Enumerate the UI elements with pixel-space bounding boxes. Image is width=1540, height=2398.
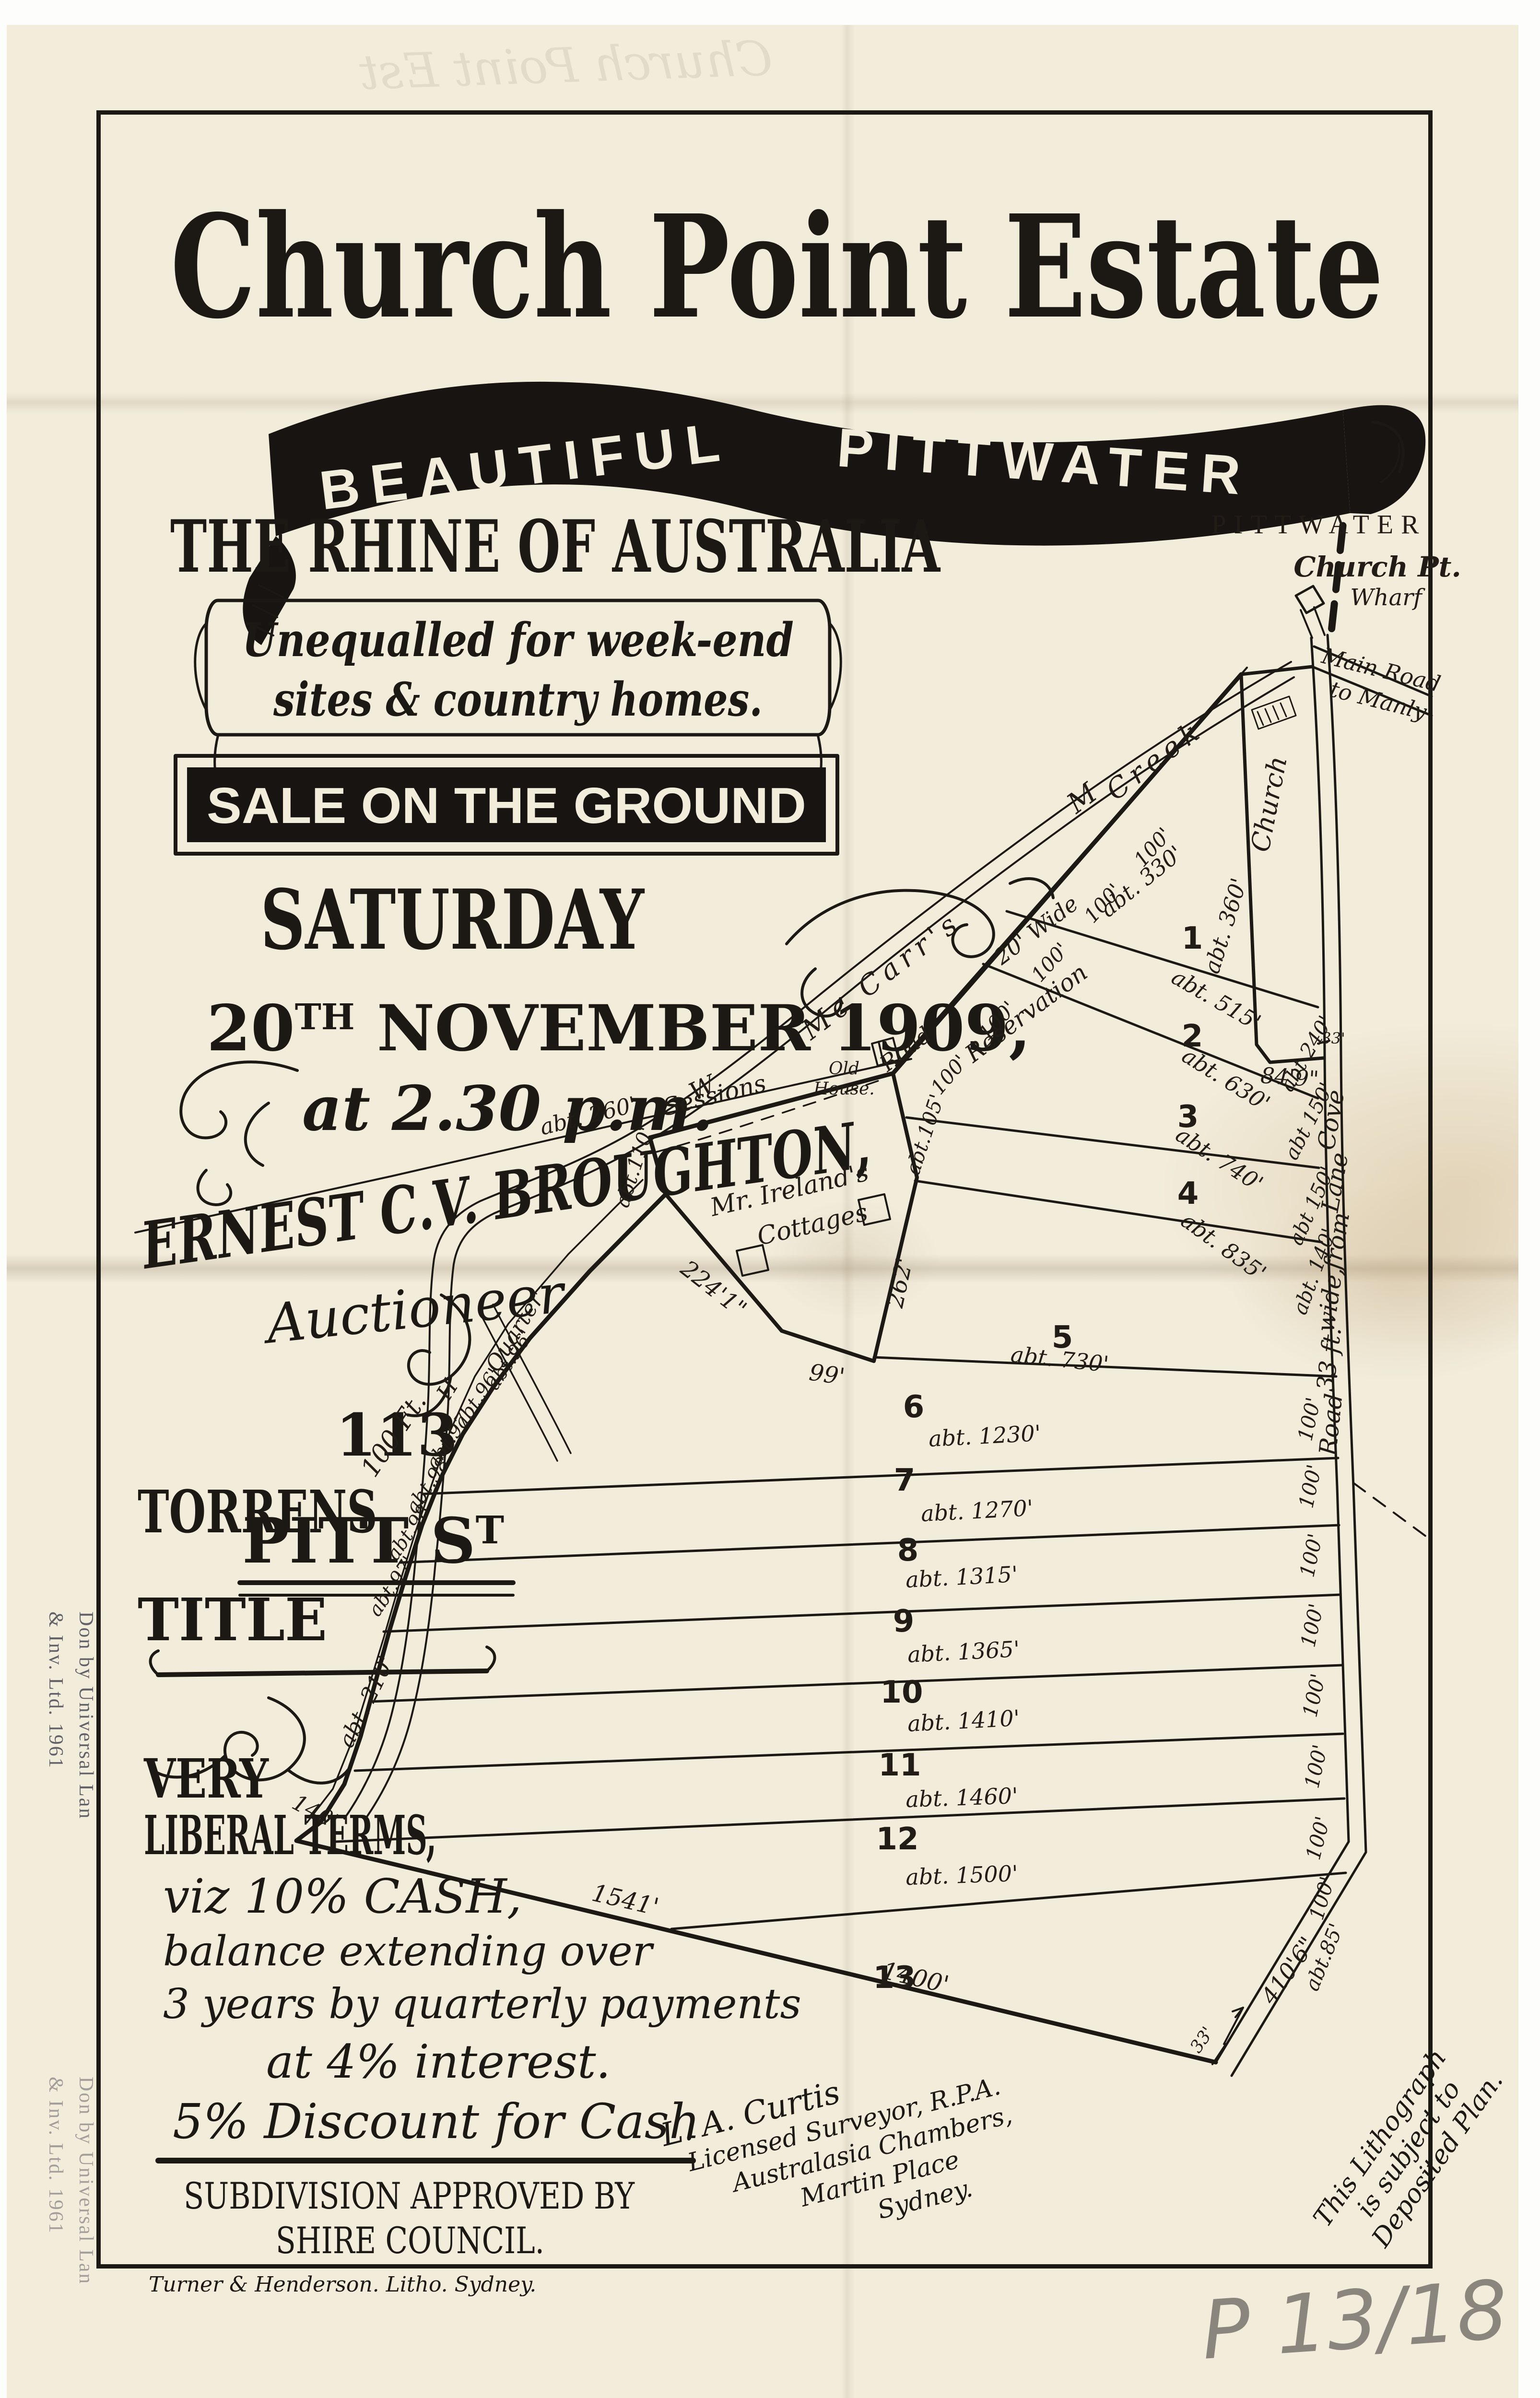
lane-cove-road-east: [1232, 635, 1366, 2076]
torrens-line2: TITLE: [138, 1585, 327, 1654]
sale-banner-text: SALE ON THE GROUND: [207, 777, 806, 834]
map-label: abt. 1500': [905, 1860, 1018, 1890]
map-label: abt. 1270': [920, 1495, 1034, 1527]
plan-ref-pencil: P 13/18: [1199, 2263, 1511, 2378]
date-line1: SATURDAY: [260, 871, 645, 968]
stamp-line: & Inv. Ltd. 1961: [40, 1611, 71, 1976]
church-symbol: [1252, 696, 1296, 729]
surveyor-block: L. A. Curtis Licensed Surveyor, R.P.A. A…: [657, 2034, 1030, 2271]
map-label: 3: [1177, 1099, 1199, 1135]
terms-line1: VERY: [143, 1748, 269, 1810]
map-label: 262': [882, 1256, 918, 1311]
map-label: abt. 1410': [907, 1705, 1021, 1737]
wharf-approach: [1301, 607, 1325, 638]
wharf-icon: [1296, 586, 1324, 613]
map-label: abt. 1365': [907, 1636, 1021, 1668]
map-label: Creek: [1100, 713, 1210, 807]
map-label: 99': [808, 1359, 846, 1390]
map-label: Road: [1314, 1392, 1348, 1458]
map-label: Old: [829, 1059, 859, 1079]
map-label: 2: [1182, 1019, 1203, 1054]
map-label: abt. 1460': [905, 1783, 1018, 1812]
map-label: Lane: [1316, 1151, 1354, 1215]
map-label: House.: [813, 1079, 874, 1099]
archive-stamp-2: Don by Universal Lan & Inv. Ltd. 1961: [40, 2077, 101, 2393]
flourish-time: [181, 1062, 297, 1205]
map-label: abt. 835': [1176, 1207, 1271, 1286]
map-label: 33': [1187, 2023, 1218, 2057]
plan-note: This Lithograph is subject to Deposited …: [1307, 2032, 1509, 2267]
map-label: 33 ft.: [1311, 1326, 1347, 1393]
approval-line2: SHIRE COUNCIL.: [276, 2219, 544, 2262]
terms-line5: 3 years by quarterly payments: [163, 1980, 801, 2028]
map-label: 1: [1182, 921, 1203, 956]
map-label: 100': [1296, 1601, 1328, 1649]
poster-page: Church Point Est: [0, 0, 1540, 2398]
map-label: 4: [1177, 1176, 1199, 1211]
map-label: 7: [894, 1463, 916, 1498]
map-label: Wharf: [1350, 584, 1425, 611]
terms-line3: viz 10% CASH,: [163, 1869, 522, 1924]
terms-line2: LIBERAL TERMS,: [144, 1804, 436, 1867]
torrens-line1: TORRENS: [138, 1477, 377, 1546]
map-label: 100': [1295, 1531, 1327, 1579]
map-label: 100': [1305, 1874, 1339, 1923]
map-label: 100': [1301, 1814, 1335, 1862]
approval-line1: SUBDIVISION APPROVED BY: [184, 2175, 635, 2217]
church-parcel: [1241, 667, 1324, 1062]
map-label: abt. 1315': [905, 1561, 1019, 1593]
map-label: 100': [1300, 1742, 1332, 1790]
map-label: 10: [880, 1675, 923, 1710]
sale-banner: SALE ON THE GROUND: [176, 756, 837, 854]
map-label: PITTWATER: [1211, 510, 1427, 540]
map-label: abt. 360': [1199, 875, 1252, 976]
litho-credit: Turner & Henderson. Litho. Sydney.: [149, 2272, 536, 2297]
stamp-line: Don by Universal Lan: [71, 1611, 101, 1976]
poster-title: Church Point Estate: [170, 184, 1384, 350]
terms-line7: 5% Discount for Cash: [173, 2093, 700, 2150]
map-label: 12: [876, 1822, 918, 1857]
map-label: 9: [893, 1604, 915, 1639]
map-label: 6: [903, 1389, 925, 1425]
map-label: Church: [1245, 753, 1293, 854]
tagline: THE RHINE OF AUSTRALIA: [170, 505, 941, 589]
map-label: M: [1060, 776, 1104, 820]
scroll-line1: Unequalled for week-end: [242, 613, 794, 667]
map-label: Church Pt.: [1293, 551, 1461, 583]
ribbon-curl-right: [1343, 405, 1425, 514]
archive-stamp-1: Don by Universal Lan & Inv. Ltd. 1961: [40, 1611, 101, 1976]
map-label: 11: [878, 1748, 921, 1783]
stamp-line: & Inv. Ltd. 1961: [40, 2077, 71, 2393]
map-label: abt. 1230': [928, 1420, 1042, 1452]
map-label: 100': [1294, 1462, 1326, 1510]
map-label: 5: [1052, 1320, 1073, 1355]
map-label: from: [1318, 1211, 1355, 1273]
stamp-line: Don by Universal Lan: [71, 2077, 101, 2393]
scroll-line2: sites & country homes.: [273, 672, 763, 727]
apex-arrow: [1212, 2008, 1243, 2064]
map-label: 13: [873, 1960, 916, 1996]
terms-line6: at 4% interest.: [266, 2035, 611, 2089]
map-label: 8: [897, 1533, 919, 1568]
torrens-rule: [158, 1671, 487, 1675]
poster-artwork: Church Point Estate THE RHINE OF AUSTRAL…: [0, 0, 1540, 2398]
dashed-line-southeast: [1353, 1483, 1432, 1540]
map-label: 100': [1298, 1671, 1330, 1719]
terms-line4: balance extending over: [163, 1928, 655, 1975]
